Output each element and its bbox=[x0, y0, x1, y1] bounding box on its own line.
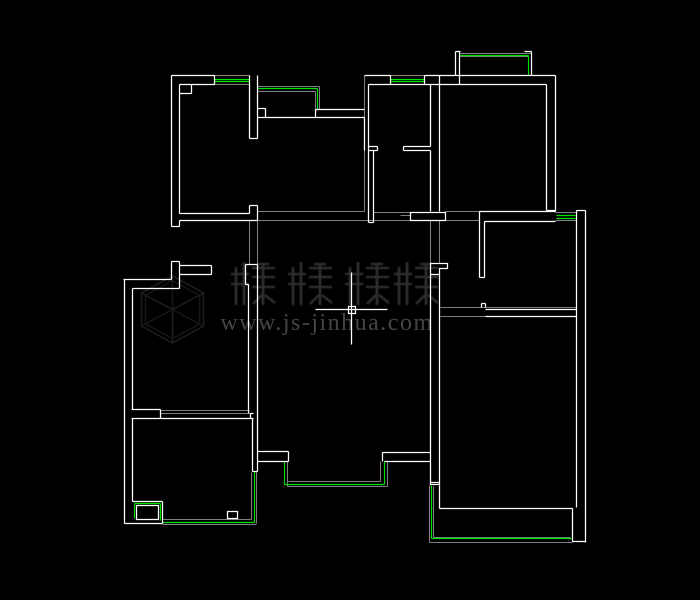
svg-text:www.js-jinhua.com: www.js-jinhua.com bbox=[220, 310, 433, 336]
